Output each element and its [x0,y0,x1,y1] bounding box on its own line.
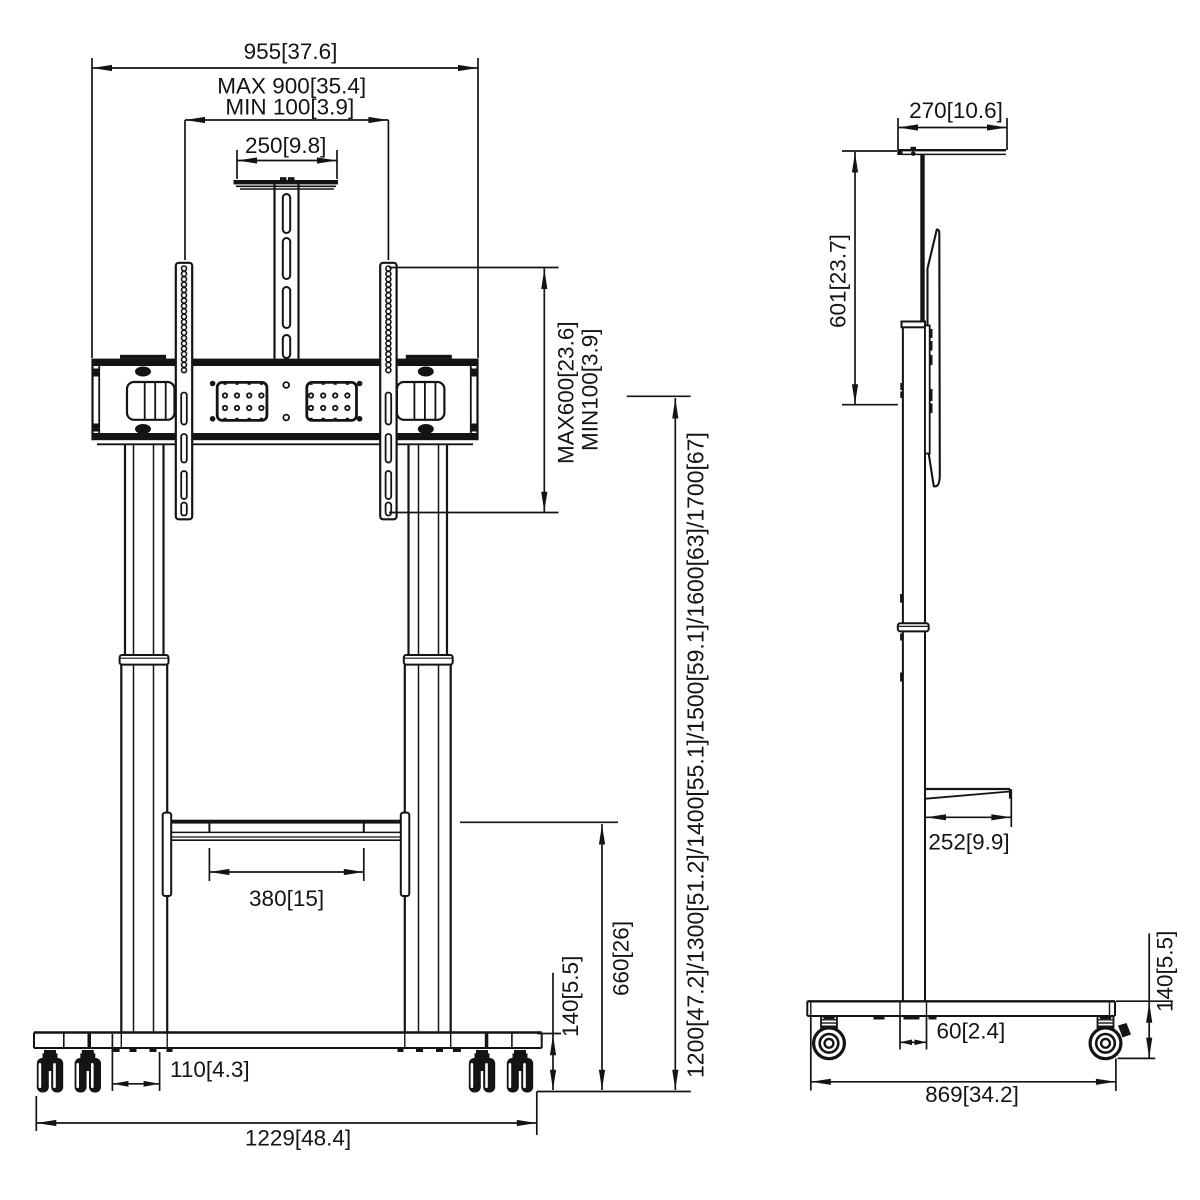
svg-text:1200[47.2]/1300[51.2]/1400[55.: 1200[47.2]/1300[51.2]/1400[55.1]/1500[59… [683,432,709,1078]
svg-text:MIN100[3.9]: MIN100[3.9] [578,328,603,451]
svg-text:869[34.2]: 869[34.2] [925,1082,1019,1107]
svg-text:252[9.9]: 252[9.9] [928,830,1009,855]
svg-text:250[9.8]: 250[9.8] [245,133,326,158]
svg-text:270[10.6]: 270[10.6] [909,98,1003,123]
svg-text:110[4.3]: 110[4.3] [170,1057,250,1082]
svg-text:140[5.5]: 140[5.5] [558,956,583,1037]
svg-text:601[23.7]: 601[23.7] [826,234,851,328]
svg-text:1229[48.4]: 1229[48.4] [245,1126,351,1151]
svg-text:60[2.4]: 60[2.4] [937,1019,1006,1044]
svg-text:660[26]: 660[26] [609,921,634,996]
svg-text:955[37.6]: 955[37.6] [244,39,338,64]
svg-text:140[5.5]: 140[5.5] [1153,931,1178,1012]
svg-text:380[15]: 380[15] [249,886,324,911]
svg-text:MIN 100[3.9]: MIN 100[3.9] [225,95,354,120]
svg-text:MAX600[23.6]: MAX600[23.6] [554,321,579,464]
